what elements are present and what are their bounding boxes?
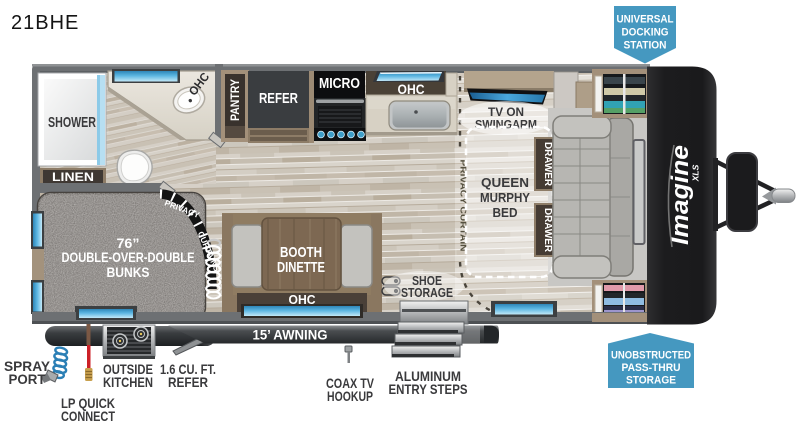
svg-text:SHOWER: SHOWER — [48, 114, 96, 131]
svg-text:76”: 76” — [117, 236, 140, 251]
svg-text:UNIVERSAL: UNIVERSAL — [617, 14, 674, 26]
svg-text:UNOBSTRUCTED: UNOBSTRUCTED — [611, 350, 691, 362]
svg-text:STATION: STATION — [624, 40, 667, 52]
svg-text:DOUBLE-OVER-DOUBLE: DOUBLE-OVER-DOUBLE — [62, 250, 195, 265]
svg-text:XLS: XLS — [691, 164, 701, 182]
svg-text:KITCHEN: KITCHEN — [103, 374, 153, 390]
svg-text:STORAGE: STORAGE — [401, 285, 453, 300]
svg-text:DRAWER: DRAWER — [542, 142, 553, 187]
svg-text:HOOKUP: HOOKUP — [327, 388, 373, 404]
svg-text:PASS-THRU: PASS-THRU — [622, 362, 681, 374]
svg-text:LINEN: LINEN — [52, 170, 94, 184]
svg-text:DINETTE: DINETTE — [277, 259, 325, 276]
svg-text:BUNKS: BUNKS — [107, 265, 150, 280]
svg-text:ENTRY STEPS: ENTRY STEPS — [389, 381, 468, 397]
svg-text:QUEEN: QUEEN — [481, 175, 529, 190]
svg-text:REFER: REFER — [259, 91, 298, 107]
svg-text:BED: BED — [493, 205, 518, 220]
svg-text:21BHE: 21BHE — [11, 12, 79, 34]
svg-text:15’ AWNING: 15’ AWNING — [253, 327, 328, 343]
svg-text:MURPHY: MURPHY — [480, 190, 530, 205]
svg-text:PANTRY: PANTRY — [228, 79, 242, 121]
svg-text:PORT: PORT — [9, 371, 46, 387]
svg-text:DOCKING: DOCKING — [622, 27, 669, 39]
svg-text:REFER: REFER — [168, 374, 208, 390]
svg-text:DRAWER: DRAWER — [542, 208, 553, 253]
svg-text:STORAGE: STORAGE — [626, 375, 676, 387]
svg-text:MICRO: MICRO — [319, 76, 360, 92]
svg-text:CONNECT: CONNECT — [61, 408, 115, 424]
